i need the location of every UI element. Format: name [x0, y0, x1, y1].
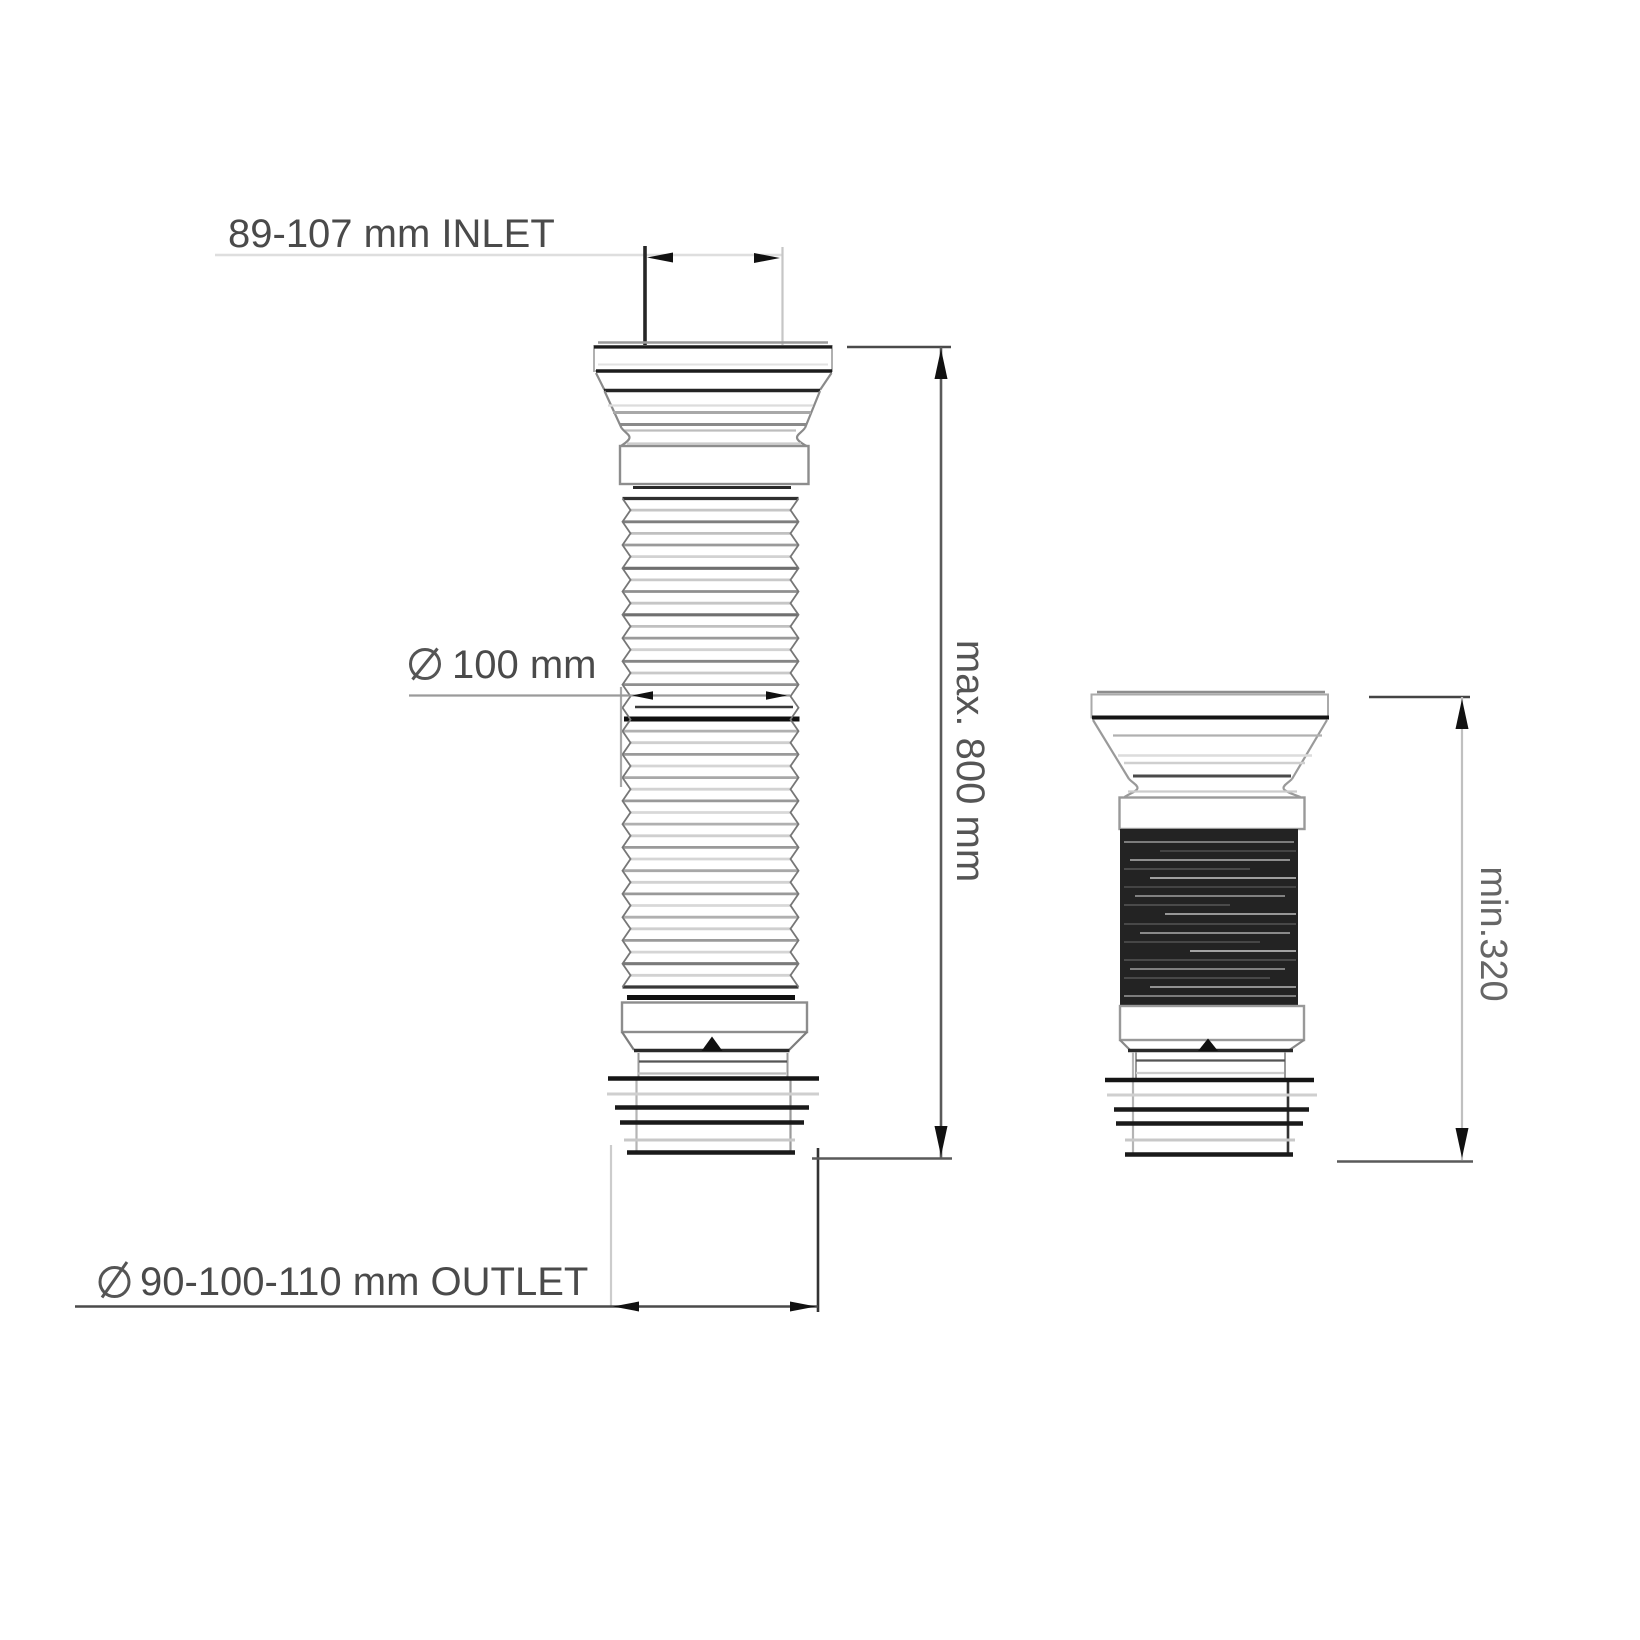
svg-text:89-107 mm INLET: 89-107 mm INLET: [228, 212, 555, 256]
svg-text:min.320: min.320: [1472, 866, 1514, 1001]
svg-text:90-100-110 mm OUTLET: 90-100-110 mm OUTLET: [140, 1260, 588, 1304]
svg-text:100 mm: 100 mm: [452, 643, 597, 687]
svg-text:max. 800 mm: max. 800 mm: [948, 640, 992, 882]
